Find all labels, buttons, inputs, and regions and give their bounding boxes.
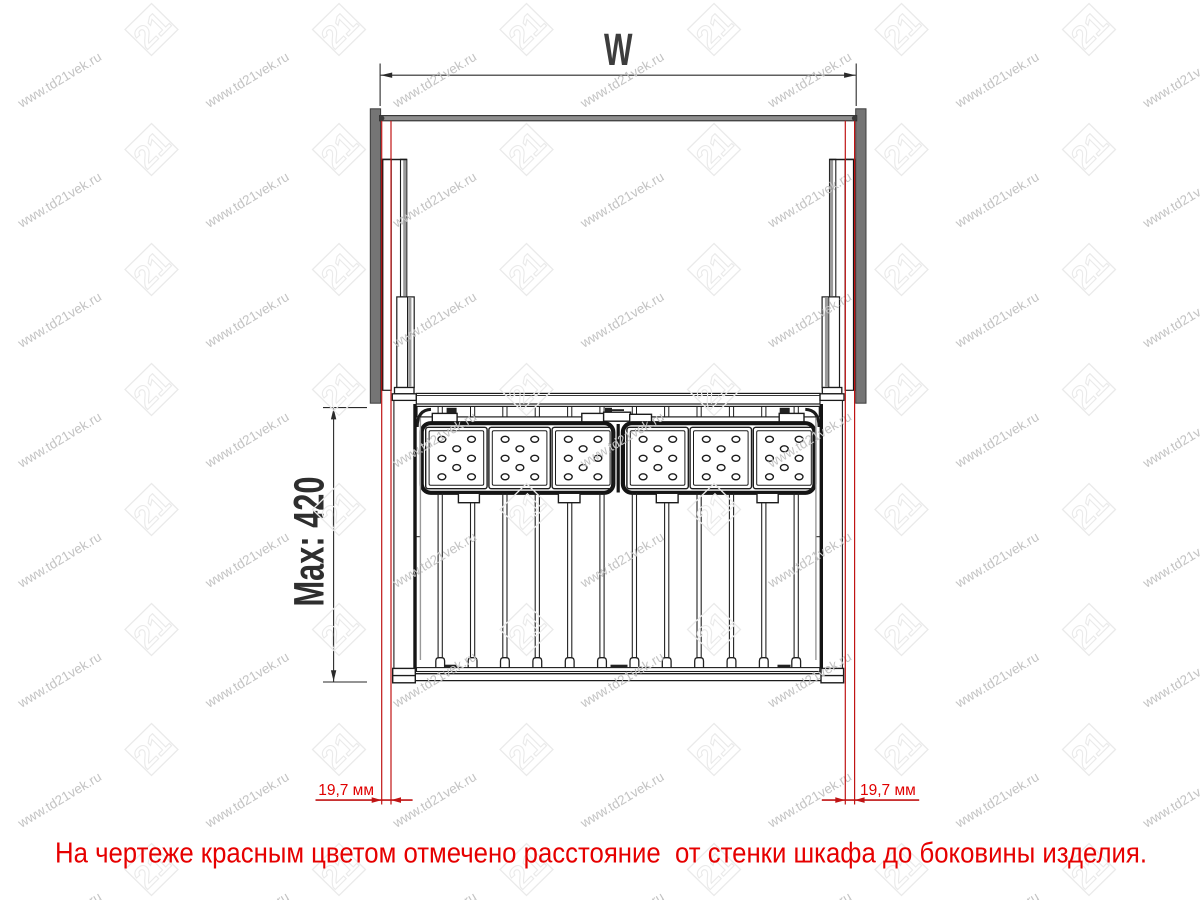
svg-text:19,7 мм: 19,7 мм <box>318 782 374 799</box>
svg-text:На чертеже красным цветом отме: На чертеже красным цветом отмечено расст… <box>55 838 1147 870</box>
svg-text:19,7 мм: 19,7 мм <box>860 782 916 799</box>
